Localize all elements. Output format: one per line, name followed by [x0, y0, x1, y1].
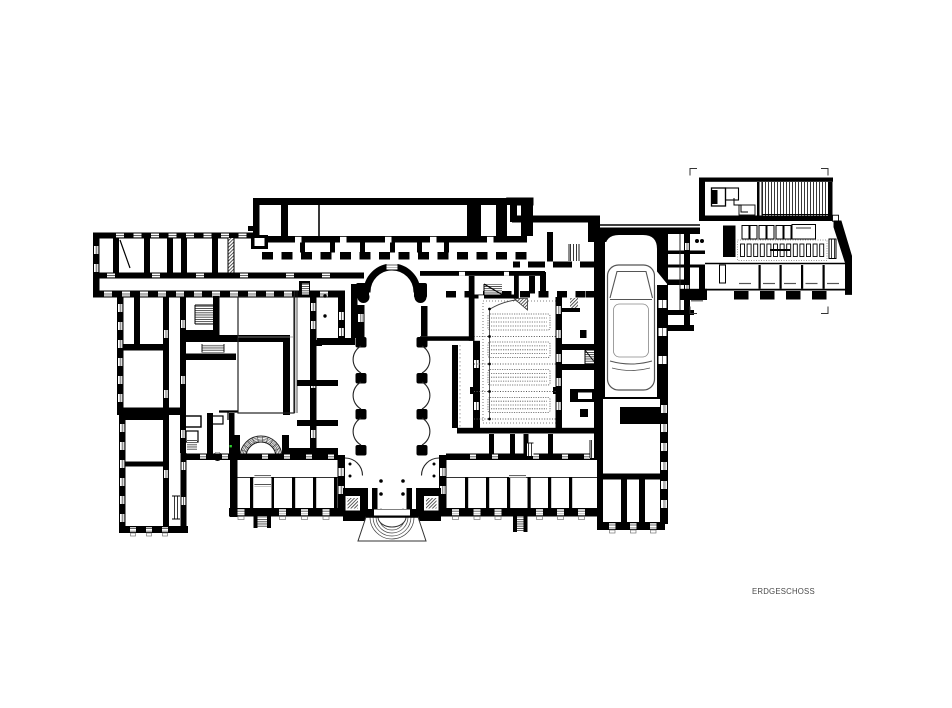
- svg-text:ERDGESCHOSS: ERDGESCHOSS: [752, 587, 815, 596]
